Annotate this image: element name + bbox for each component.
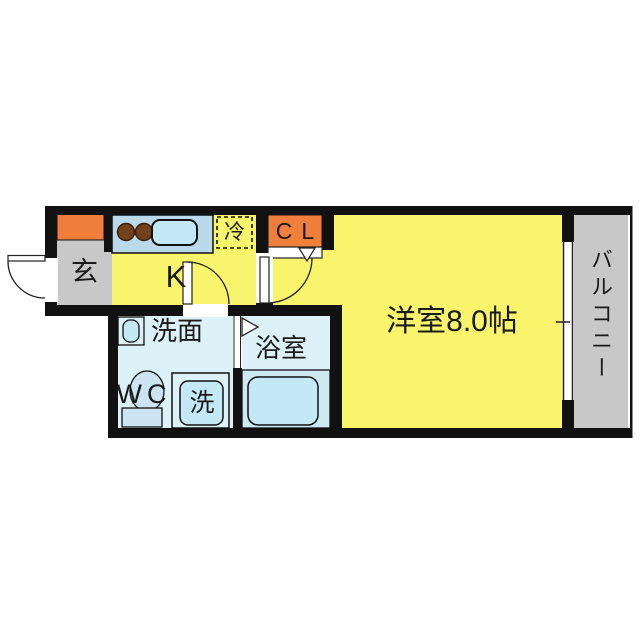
balcony-rail-line (630, 206, 633, 438)
entrance-label: 玄 (57, 252, 112, 292)
wall-right-upper (562, 215, 574, 242)
toilet-label: WC (116, 379, 172, 409)
wall-left-lower (108, 316, 118, 428)
western-room-label: 洋室8.0帖 (340, 303, 564, 341)
entrance-door-arc-icon (8, 256, 45, 299)
kitchen-label: K (156, 258, 196, 294)
washing-machine-label: 洗 (188, 389, 216, 417)
entrance-opening (44, 258, 58, 302)
bathtub-icon (248, 377, 318, 425)
shoe-cabinet (57, 214, 104, 240)
closet-label: CL (268, 215, 322, 247)
balcony-label: バルコニー (586, 248, 614, 413)
washroom-label: 洗面 (146, 316, 208, 346)
floor-plan: 玄 K 冷 CL 洋室8.0帖 バルコニー 洗面 WC 洗 浴室 (0, 0, 640, 640)
refrigerator-label: 冷 (217, 217, 252, 248)
wall-top (45, 206, 630, 215)
kitchen-sink-icon (152, 220, 197, 245)
bathroom-label: 浴室 (251, 334, 311, 362)
wall-stub-closet-right (322, 215, 334, 250)
wall-bottom (108, 428, 631, 438)
wall-right-lower (562, 400, 574, 428)
washbasin-icon (118, 317, 144, 345)
